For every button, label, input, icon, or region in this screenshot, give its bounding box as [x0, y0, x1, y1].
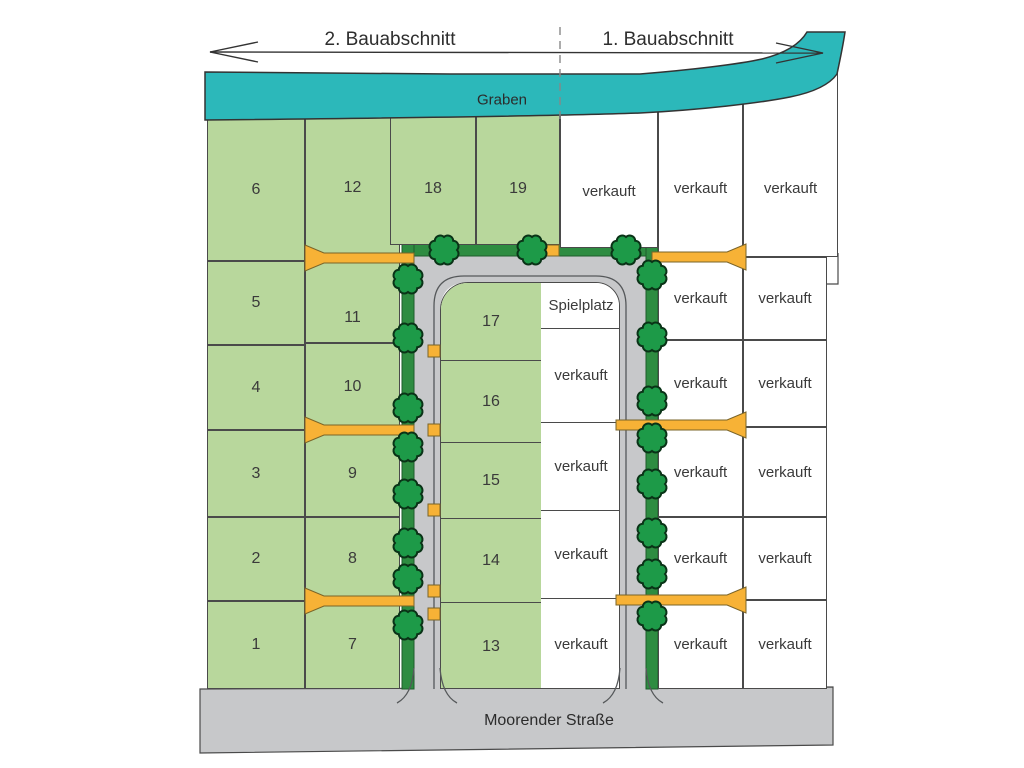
plot-sold: verkauft [743, 65, 838, 257]
plot-19: 19 [476, 110, 560, 245]
plot-10: 10 [305, 343, 400, 430]
plot-16: 16 [441, 361, 541, 443]
plot-sold: verkauft [658, 517, 743, 600]
plot-sold: verkauft [743, 427, 827, 517]
sold-label: verkauft [674, 180, 727, 197]
plot-1: 1 [207, 601, 305, 689]
plot-4: 4 [207, 345, 305, 430]
sold-label: verkauft [758, 636, 811, 653]
sold-label: verkauft [554, 458, 607, 475]
sold-label: verkauft [554, 367, 607, 384]
plot-number: 12 [344, 179, 362, 197]
plot-3: 3 [207, 430, 305, 517]
sold-label: verkauft [674, 375, 727, 392]
plot-14: 14 [441, 519, 541, 603]
plot-sold: verkauft [743, 600, 827, 689]
plot-sold: verkauft [743, 257, 827, 340]
plot-sold: verkauft [743, 340, 827, 427]
section-label-left: 2. Bauabschnitt [325, 29, 456, 51]
water-label: Graben [477, 92, 527, 109]
plot-number: 3 [252, 465, 261, 483]
plot-sold: verkauft [541, 423, 620, 511]
sold-label: verkauft [758, 290, 811, 307]
plot-number: 8 [348, 550, 357, 568]
plot-number: 7 [348, 636, 357, 654]
plot-sold: verkauft [658, 427, 743, 517]
sold-label: verkauft [758, 550, 811, 567]
plot-number: 4 [252, 379, 261, 397]
plot-18: 18 [390, 113, 476, 245]
plot-number: 19 [509, 180, 527, 198]
plot-sold: verkauft [658, 95, 743, 257]
sold-label: verkauft [674, 464, 727, 481]
plot-12: 12 [305, 117, 400, 258]
plot-15: 15 [441, 443, 541, 519]
plot-number: 2 [252, 550, 261, 568]
plot-sold: verkauft [743, 517, 827, 600]
playground-label: Spielplatz [548, 297, 613, 314]
plot-number: 15 [482, 472, 500, 490]
plot-number: 9 [348, 465, 357, 483]
plot-sold: verkauft [541, 329, 620, 423]
plot-number: 17 [482, 313, 500, 331]
sold-label: verkauft [554, 546, 607, 563]
plot-13: 13 [441, 603, 541, 689]
sold-label: verkauft [674, 290, 727, 307]
plot-sold: verkauft [658, 340, 743, 427]
site-plan: 6 5 4 3 2 1 12 11 10 9 8 7 18 19 verkauf… [0, 0, 1024, 768]
plot-sold: verkauft [658, 257, 743, 340]
plot-17: 17 [441, 283, 541, 361]
plot-number: 10 [344, 378, 362, 396]
plot-number: 11 [344, 309, 361, 327]
plot-sold: verkauft [541, 511, 620, 599]
plot-2: 2 [207, 517, 305, 601]
sold-label: verkauft [758, 464, 811, 481]
street-label: Moorender Straße [484, 712, 614, 730]
plot-7: 7 [305, 601, 400, 689]
plot-sold: verkauft [560, 105, 658, 248]
section-label-right: 1. Bauabschnitt [603, 29, 734, 51]
sold-label: verkauft [554, 636, 607, 653]
plot-6: 6 [207, 118, 305, 261]
plot-number: 5 [252, 294, 261, 312]
plot-number: 18 [424, 180, 442, 198]
sold-label: verkauft [674, 636, 727, 653]
plot-9: 9 [305, 430, 400, 517]
sold-label: verkauft [674, 550, 727, 567]
plot-8: 8 [305, 517, 400, 601]
playground-plot: Spielplatz [541, 283, 620, 329]
island-block: 17 16 15 14 13 Spielplatz verkauft verka… [440, 282, 620, 689]
sold-label: verkauft [764, 180, 817, 197]
plot-number: 6 [252, 181, 261, 199]
plot-number: 13 [482, 638, 500, 656]
plot-number: 14 [482, 552, 500, 570]
plots-layer: 6 5 4 3 2 1 12 11 10 9 8 7 18 19 verkauf… [0, 0, 1024, 768]
sold-label: verkauft [758, 375, 811, 392]
sold-label: verkauft [582, 183, 635, 200]
plot-number: 1 [252, 636, 261, 654]
plot-11: 11 [305, 258, 400, 343]
plot-number: 16 [482, 393, 500, 411]
plot-sold: verkauft [658, 600, 743, 689]
plot-sold: verkauft [541, 599, 620, 689]
plot-5: 5 [207, 261, 305, 345]
